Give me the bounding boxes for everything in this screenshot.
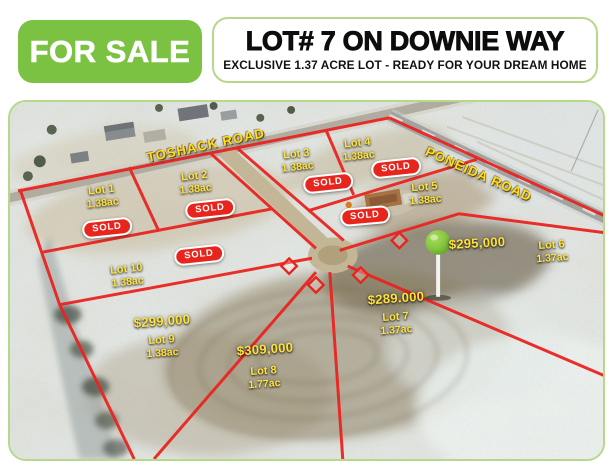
page-title: LOT# 7 ON DOWNIE WAY [246, 28, 565, 55]
title-box: LOT# 7 ON DOWNIE WAY EXCLUSIVE 1.37 ACRE… [212, 17, 598, 83]
aerial-photo: TOSHACK ROAD PONEIDA ROAD Lot 1 1.38ac L… [8, 100, 605, 461]
for-sale-banner: FOR SALE [18, 20, 202, 83]
photo-grain [10, 102, 603, 459]
aerial-photo-art [10, 102, 603, 459]
flyer-canvas: FOR SALE LOT# 7 ON DOWNIE WAY EXCLUSIVE … [0, 0, 613, 467]
page-subtitle: EXCLUSIVE 1.37 ACRE LOT - READY FOR YOUR… [223, 58, 586, 72]
